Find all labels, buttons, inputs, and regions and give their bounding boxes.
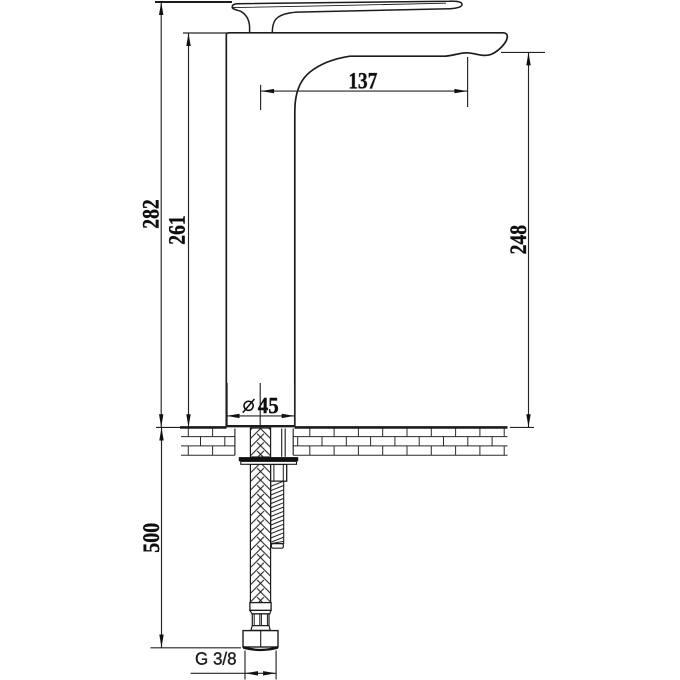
svg-text:261: 261 [165, 215, 191, 245]
svg-text:282: 282 [138, 199, 164, 229]
svg-text:248: 248 [506, 225, 532, 255]
svg-text:137: 137 [348, 68, 377, 94]
svg-text:500: 500 [139, 523, 165, 553]
svg-text:G 3/8: G 3/8 [195, 648, 237, 668]
svg-text:45: 45 [258, 393, 279, 418]
